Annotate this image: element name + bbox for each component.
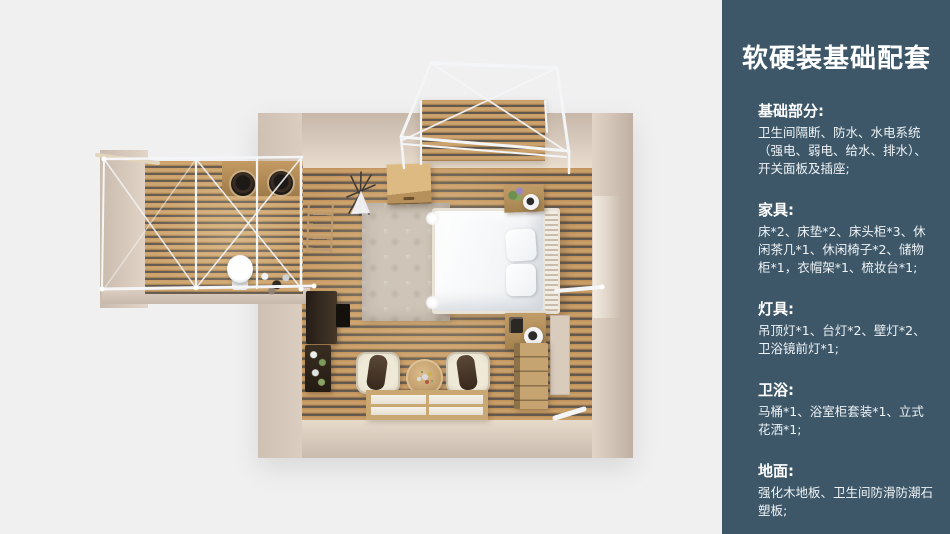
section-furniture: 家具: 床*2、床垫*2、床头柜*3、休闲茶几*1、休闲椅子*2、储物柜*1，衣… <box>758 199 934 277</box>
wall-bottom-face <box>260 420 631 458</box>
bed-tassel <box>426 212 439 225</box>
plant-rack <box>305 345 331 392</box>
dressing-stool <box>336 304 350 327</box>
mat-panel <box>371 407 426 416</box>
standing-shower-set <box>258 268 292 296</box>
speaker-box <box>509 317 523 333</box>
panel-title: 软硬装基础配套 <box>742 38 938 75</box>
section-heading: 卫浴: <box>758 379 934 400</box>
drawer-chest <box>514 343 548 409</box>
dressing-table <box>306 291 337 344</box>
mirror-panel <box>550 315 570 395</box>
section-basics: 基础部分: 卫生间隔断、防水、水电系统（强电、弱电、给水、排水）、开关面板及插座… <box>758 100 934 178</box>
section-lighting: 灯具: 吊顶灯*1、台灯*2、壁灯*2、卫浴镜前灯*1; <box>758 298 934 358</box>
sink-basin-left <box>231 172 255 196</box>
section-body: 吊顶灯*1、台灯*2、壁灯*2、卫浴镜前灯*1; <box>758 322 934 358</box>
section-flooring: 地面: 强化木地板、卫生间防滑防潮石塑板; <box>758 460 934 520</box>
mat-panel <box>429 407 484 416</box>
section-body: 卫生间隔断、防水、水电系统（强电、弱电、给水、排水）、开关面板及插座; <box>758 124 934 178</box>
floorplan-render <box>0 0 722 534</box>
lounge-chair-right <box>446 352 490 394</box>
bed-duvet <box>435 211 543 311</box>
section-heading: 地面: <box>758 460 934 481</box>
section-bathroom: 卫浴: 马桶*1、浴室柜套装*1、立式花洒*1; <box>758 379 934 439</box>
section-heading: 家具: <box>758 199 934 220</box>
section-body: 床*2、床垫*2、床头柜*3、休闲茶几*1、休闲椅子*2、储物柜*1，衣帽架*1… <box>758 223 934 277</box>
toilet <box>227 255 253 283</box>
ladder-rack <box>306 203 334 254</box>
pillow <box>506 264 537 297</box>
pillow <box>505 228 537 262</box>
section-heading: 灯具: <box>758 298 934 319</box>
bed-tassel <box>426 296 439 309</box>
mat-panel <box>429 395 484 404</box>
balcony-deck <box>420 100 545 161</box>
info-panel: 软硬装基础配套 基础部分: 卫生间隔断、防水、水电系统（强电、弱电、给水、排水）… <box>722 0 950 534</box>
wardrobe-cabinet <box>386 163 431 204</box>
bed-headboard <box>545 211 558 311</box>
wall-light-panel <box>593 196 621 318</box>
mat-panel <box>371 395 426 404</box>
section-body: 强化木地板、卫生间防滑防潮石塑板; <box>758 484 934 520</box>
section-heading: 基础部分: <box>758 100 934 121</box>
tatami-mat <box>366 390 488 420</box>
section-body: 马桶*1、浴室柜套装*1、立式花洒*1; <box>758 403 934 439</box>
sink-basin-right <box>269 171 293 195</box>
lounge-chair-left <box>356 352 400 394</box>
table-lamp-top <box>523 194 539 210</box>
bathroom-side-wall <box>100 150 148 308</box>
flower-pot <box>508 187 524 201</box>
